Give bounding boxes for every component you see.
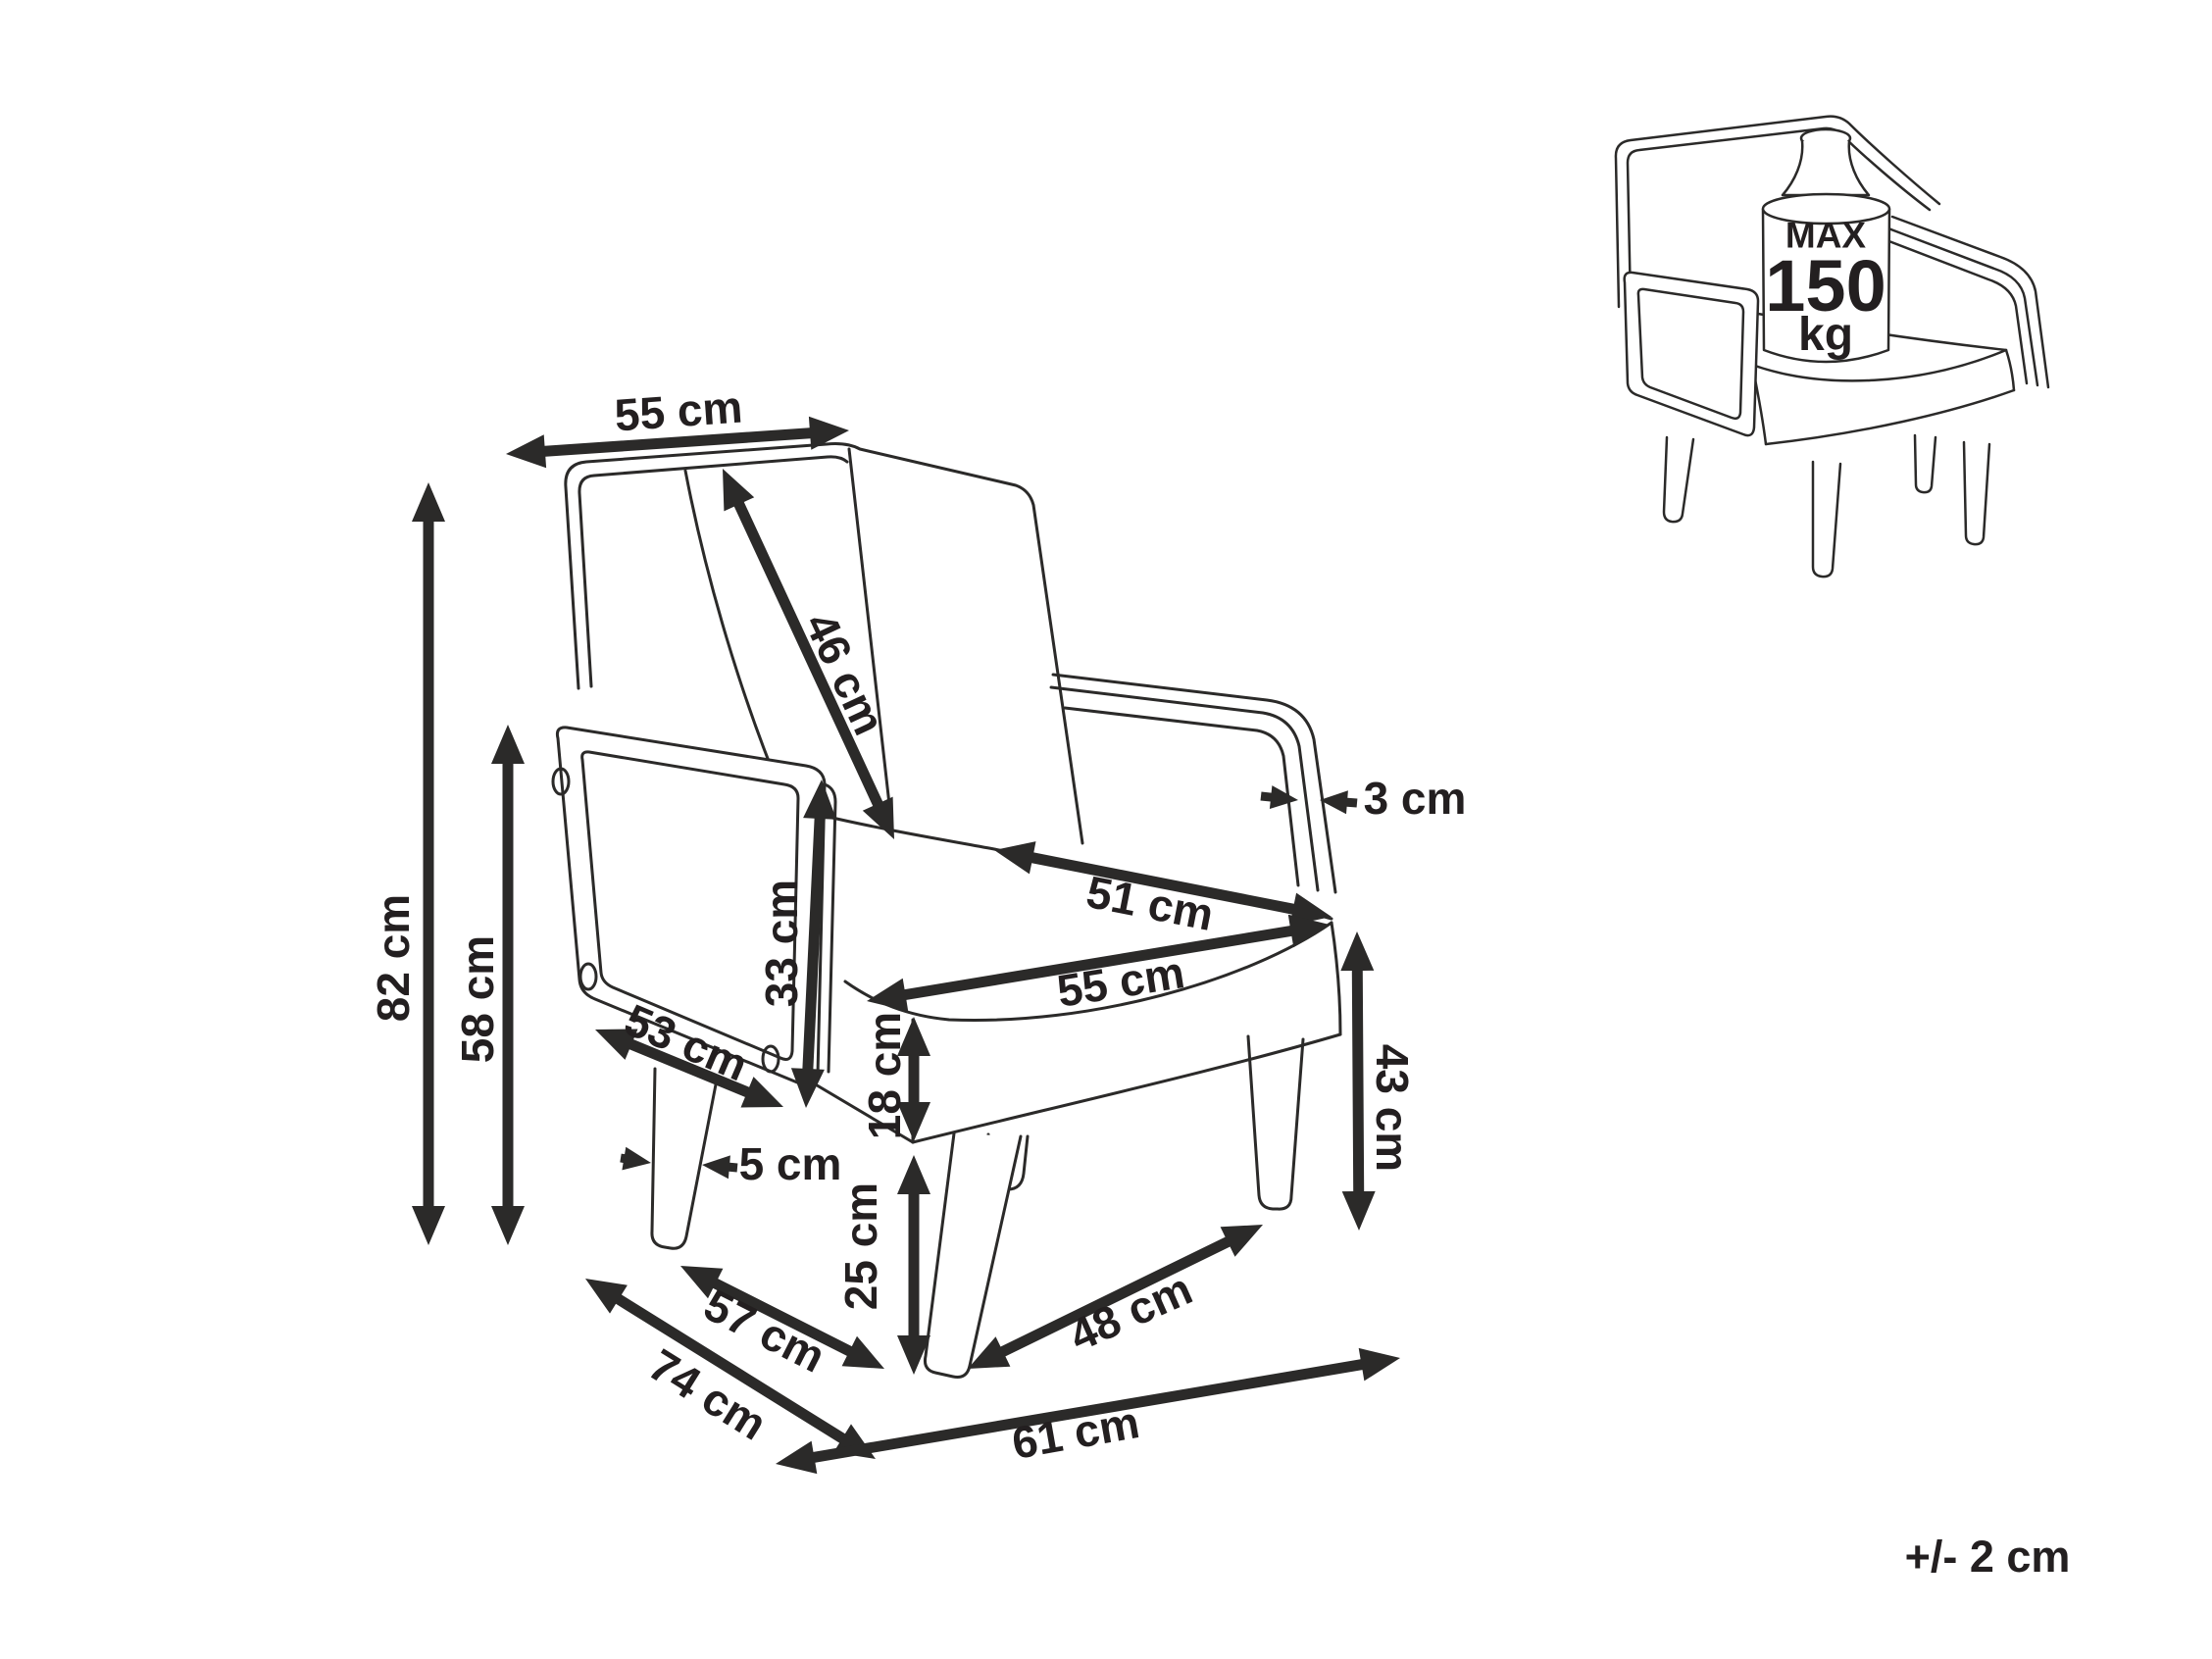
main-chair-drawing bbox=[553, 444, 1340, 1378]
seat-right-face-edge bbox=[1332, 923, 1340, 1034]
dimension-arrow bbox=[897, 1155, 930, 1375]
chair-leg-front-left bbox=[925, 1133, 1021, 1378]
dimension-arrow bbox=[620, 1147, 651, 1171]
mini-leg-front-left bbox=[1813, 462, 1840, 577]
backrest-seam-line bbox=[685, 471, 776, 779]
dimension-arrow bbox=[1320, 790, 1357, 814]
dimension-label-total-height: 82 cm bbox=[371, 894, 416, 1022]
dimension-label-seat-height: 43 cm bbox=[1370, 1044, 1415, 1172]
mini-leg-back-left bbox=[1664, 437, 1693, 522]
dimension-label-armrest-height: 58 cm bbox=[455, 935, 500, 1063]
left-armrest-panel-side bbox=[825, 784, 835, 1072]
dimension-label-cushion-thickness: 18 cm bbox=[862, 1012, 907, 1139]
weight-unit-text: kg bbox=[1798, 312, 1853, 359]
dimension-arrow bbox=[1261, 785, 1299, 809]
dimension-label-armrest-frame-thickness: 3 cm bbox=[1364, 776, 1467, 821]
chair-leg-back-left bbox=[652, 1069, 717, 1248]
mini-leg-front-right bbox=[1964, 442, 1989, 544]
tolerance-note: +/- 2 cm bbox=[1905, 1532, 2071, 1583]
chair-leg-front-right bbox=[1248, 1036, 1303, 1209]
dimension-label-leg-thickness: 5 cm bbox=[739, 1141, 842, 1186]
mini-seat-bottom-edge bbox=[1766, 390, 2014, 444]
dimension-label-leg-height: 25 cm bbox=[838, 1182, 883, 1310]
mini-leg-back-right bbox=[1915, 435, 1935, 492]
mini-right-armrest-inner bbox=[1886, 240, 2027, 383]
dimension-arrows bbox=[412, 417, 1400, 1474]
dimension-label-armrest-panel-height: 33 cm bbox=[759, 880, 804, 1007]
mini-seat-right-edge bbox=[2006, 350, 2014, 390]
right-armrest-outer bbox=[1053, 675, 1335, 892]
dimension-arrow bbox=[412, 482, 445, 1245]
dimension-arrow bbox=[702, 1155, 737, 1179]
dimension-label-backrest-width: 55 cm bbox=[613, 384, 743, 438]
dimension-diagram-page: 55 cm 46 cm 82 cm 58 cm 33 cm 53 cm 3 cm… bbox=[0, 0, 2212, 1659]
